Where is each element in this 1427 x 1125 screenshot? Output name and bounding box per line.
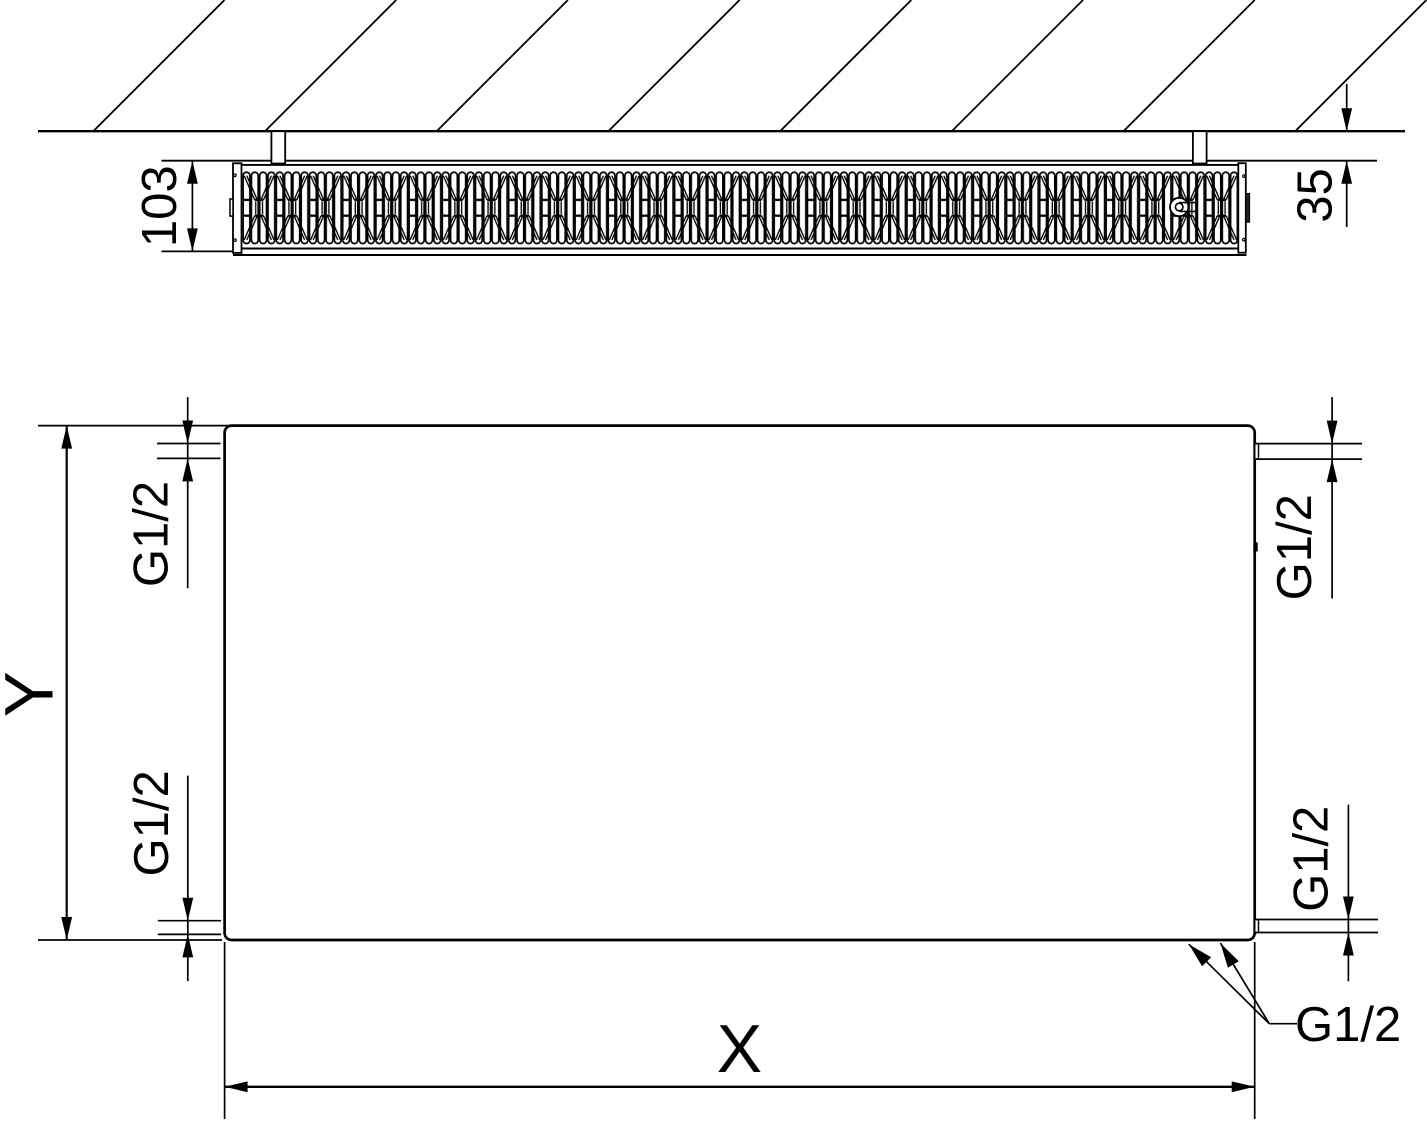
svg-text:G1/2: G1/2 bbox=[125, 481, 179, 587]
svg-text:G1/2: G1/2 bbox=[1284, 806, 1338, 912]
svg-text:103: 103 bbox=[133, 165, 187, 247]
svg-text:G1/2: G1/2 bbox=[1295, 998, 1401, 1052]
svg-text:G1/2: G1/2 bbox=[125, 770, 179, 876]
svg-text:G1/2: G1/2 bbox=[1268, 494, 1322, 600]
svg-text:35: 35 bbox=[1288, 168, 1342, 223]
svg-text:Y: Y bbox=[0, 671, 67, 717]
svg-text:X: X bbox=[717, 1011, 762, 1087]
